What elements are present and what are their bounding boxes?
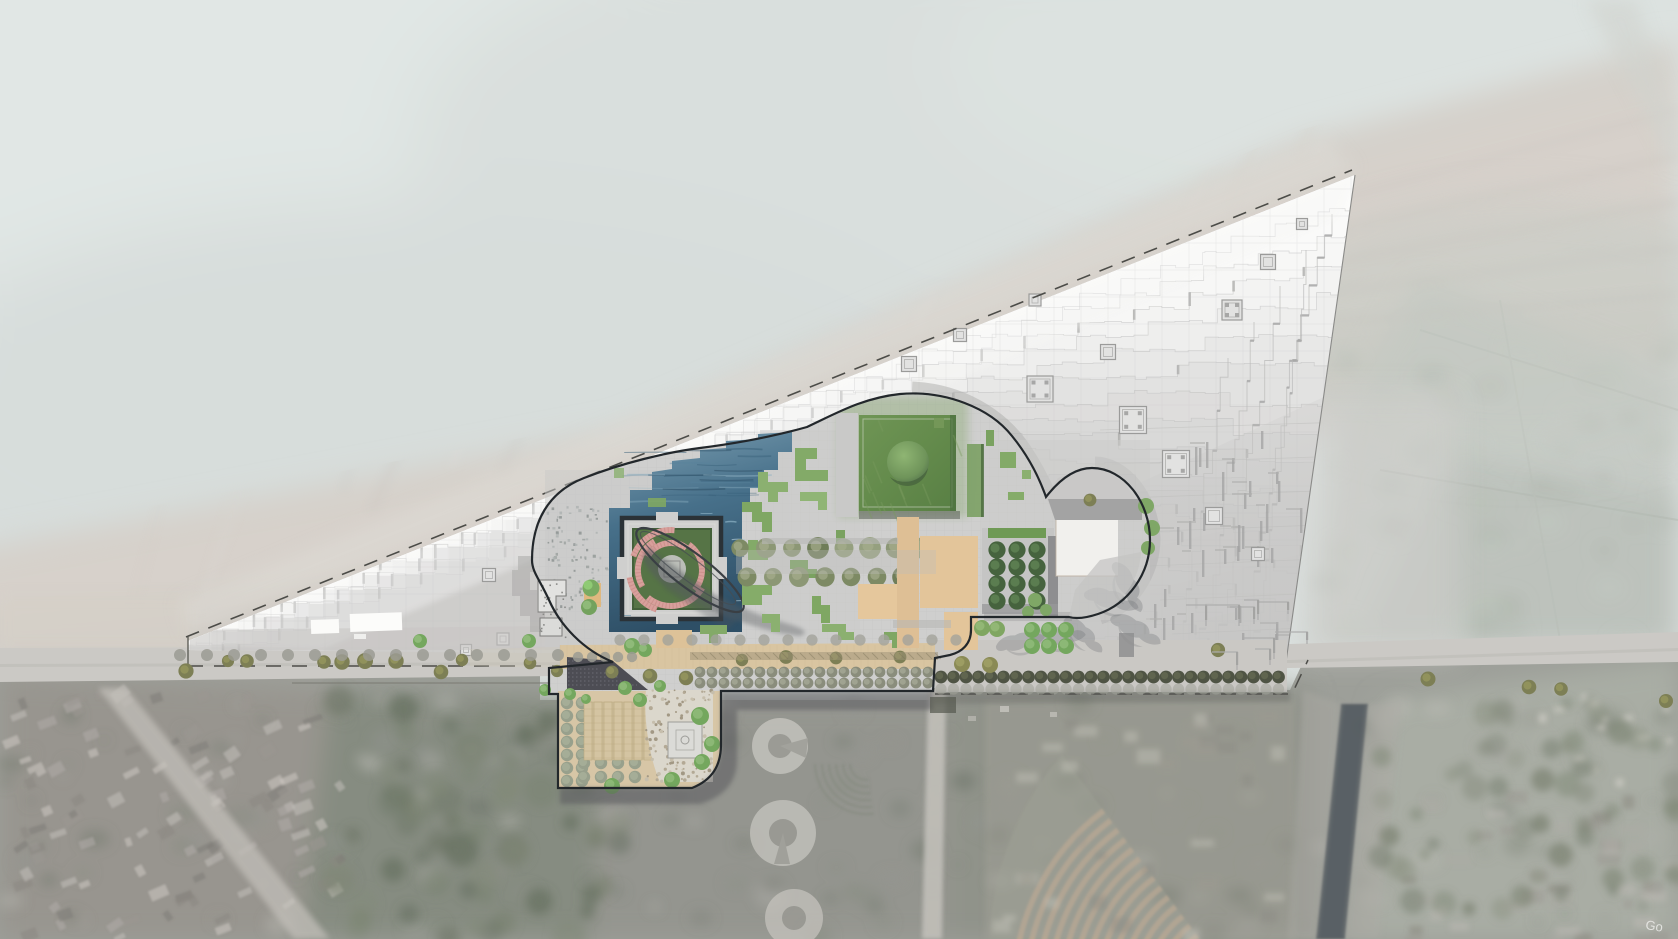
svg-text:Go: Go <box>1645 917 1664 935</box>
